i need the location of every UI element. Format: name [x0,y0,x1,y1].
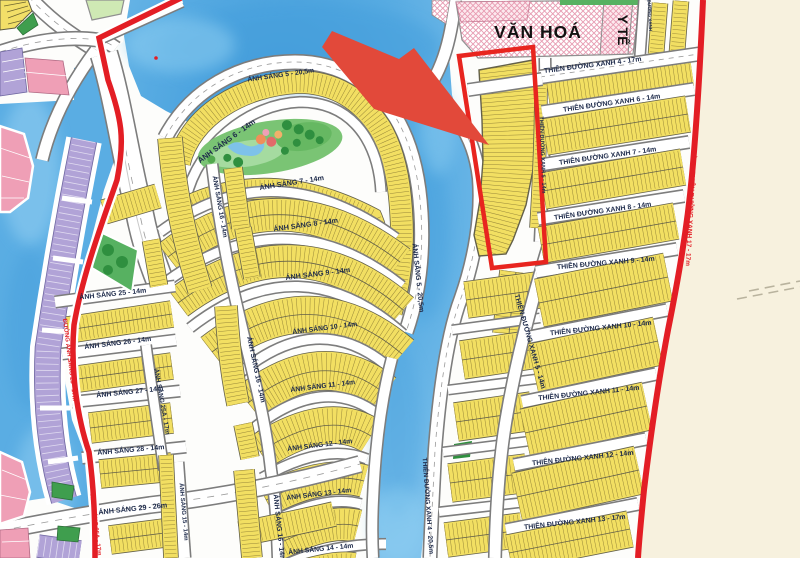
svg-text:Y TẾ: Y TẾ [615,15,631,46]
svg-text:VĂN HOÁ: VĂN HOÁ [494,21,582,42]
